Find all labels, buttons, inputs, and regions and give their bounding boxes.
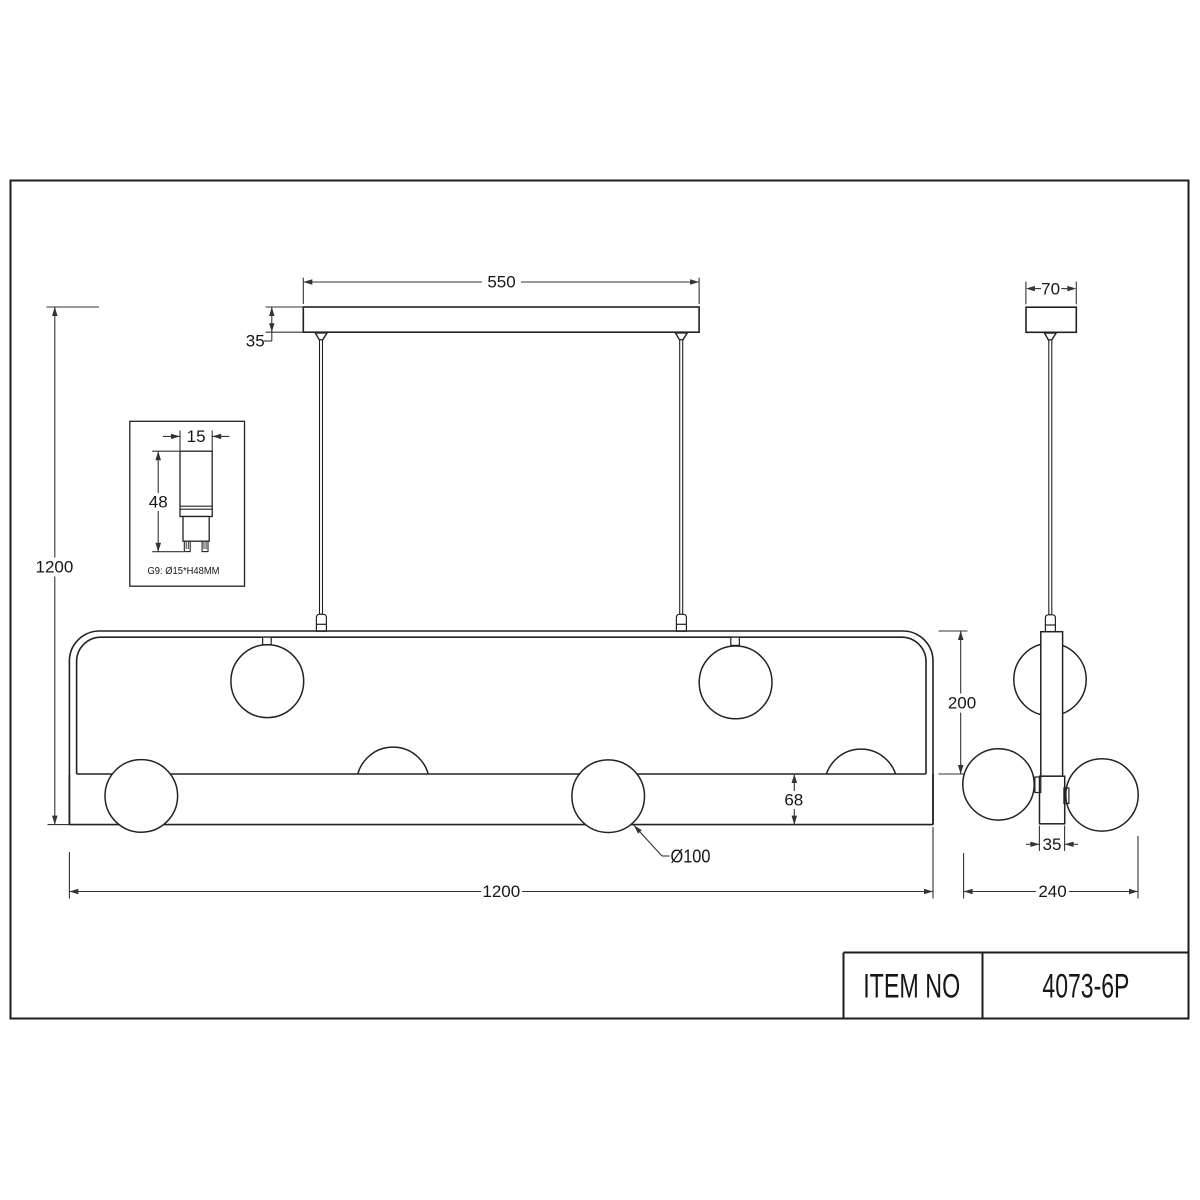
svg-text:ITEM NO: ITEM NO xyxy=(863,968,960,1006)
svg-text:35: 35 xyxy=(1043,835,1062,854)
svg-text:200: 200 xyxy=(948,694,976,713)
svg-text:4073-6P: 4073-6P xyxy=(1042,968,1129,1006)
svg-text:1200: 1200 xyxy=(482,882,520,901)
svg-text:48: 48 xyxy=(149,493,168,512)
svg-text:G9: Ø15*H48MM: G9: Ø15*H48MM xyxy=(148,566,220,577)
svg-text:70: 70 xyxy=(1041,279,1060,298)
svg-text:68: 68 xyxy=(784,791,803,810)
svg-text:Ø100: Ø100 xyxy=(671,846,711,866)
svg-text:35: 35 xyxy=(246,331,265,350)
svg-text:240: 240 xyxy=(1038,882,1066,901)
svg-text:15: 15 xyxy=(187,427,206,446)
svg-text:1200: 1200 xyxy=(35,558,73,577)
svg-text:550: 550 xyxy=(487,273,515,292)
